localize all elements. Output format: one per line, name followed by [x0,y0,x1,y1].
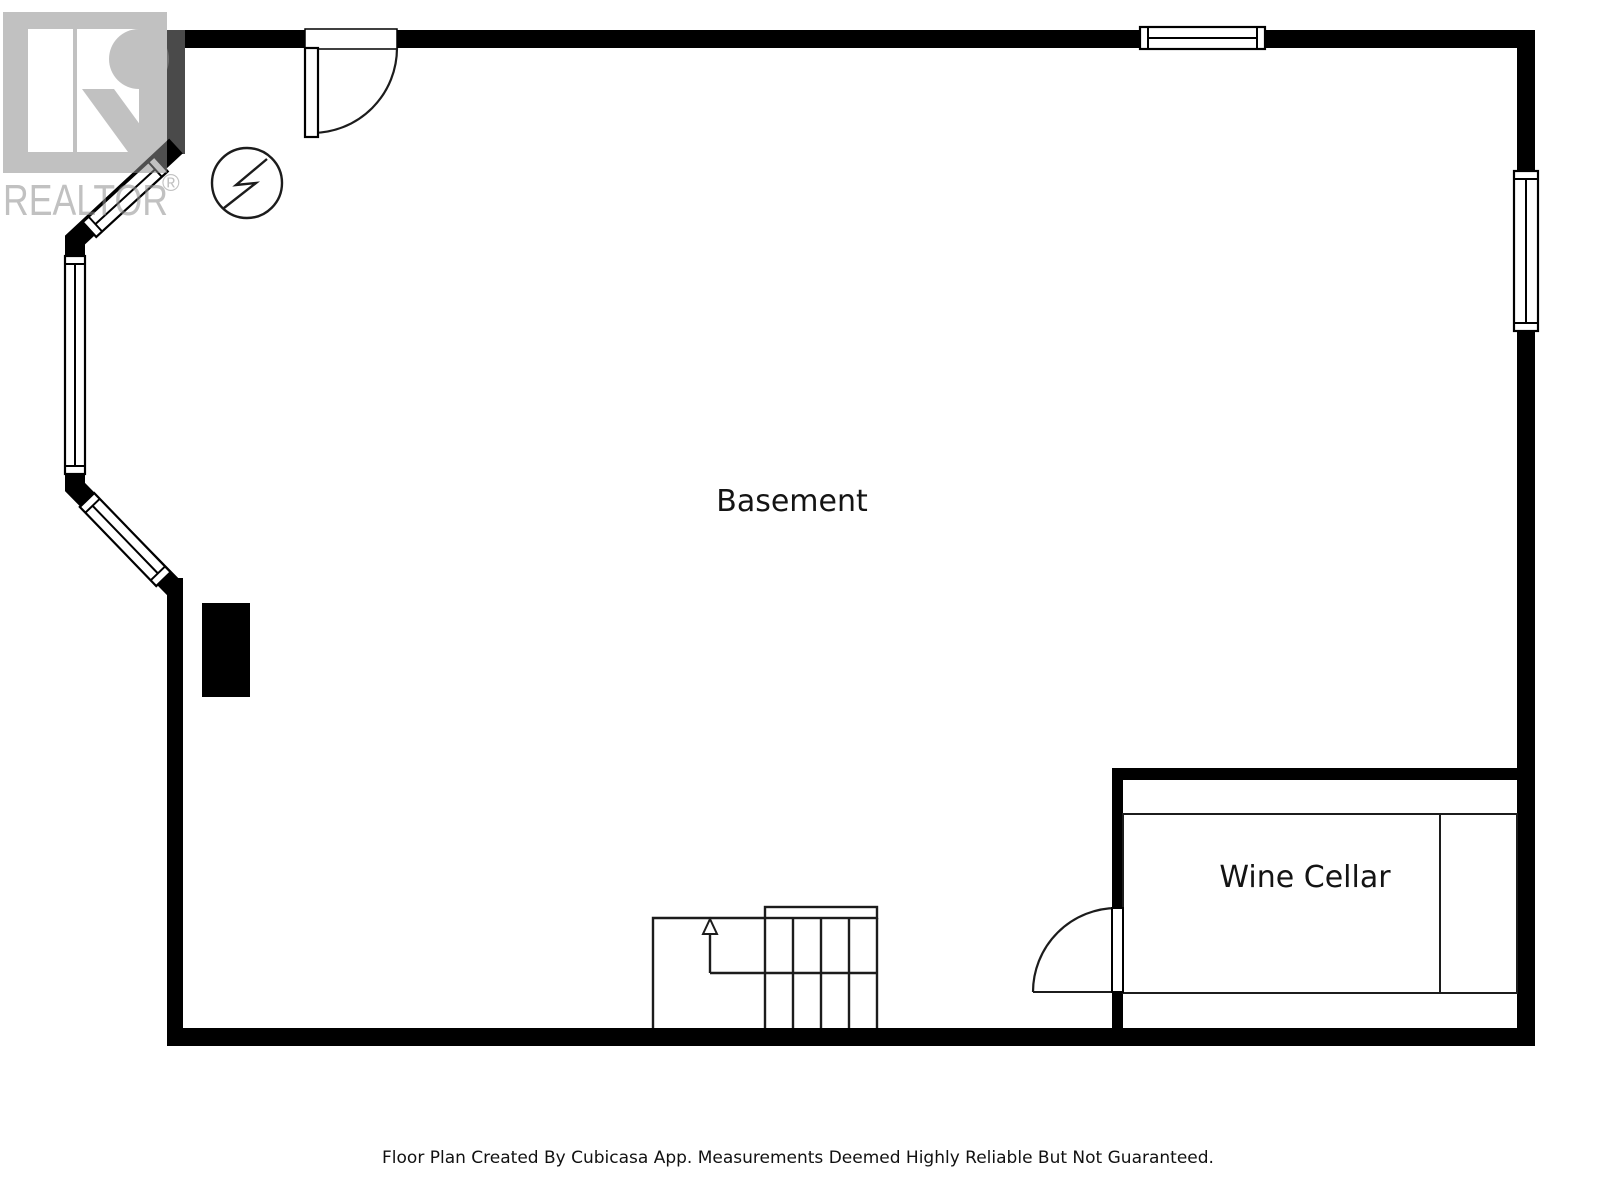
wall-top-left-segment [167,30,305,48]
wall-top-right-segment [1265,30,1535,48]
wine-cellar-label: Wine Cellar [1219,860,1391,895]
wine-cellar-door-leaf [1112,908,1123,992]
electrical-symbol-icon [212,148,282,218]
top-entry-door [305,29,397,137]
realtor-watermark: REALTOR ® [3,12,180,225]
floor-plan-page: Basement Wine Cellar REALTOR ® Floor Pla… [0,0,1600,1200]
realtor-logo-stem [28,29,73,152]
registered-trademark-symbol: ® [162,170,180,197]
wall-left-top-stub [167,30,185,154]
wall-right-lower-segment [1517,331,1535,1046]
footer-disclaimer: Floor Plan Created By Cubicasa App. Meas… [382,1148,1214,1168]
stairs [653,907,877,1028]
wall-bottom [167,1028,1535,1046]
door-threshold [305,29,397,49]
wine-cellar-wall-top [1112,768,1517,780]
stairs-up-arrow-icon [703,919,717,973]
wine-cellar-room [1033,768,1517,1028]
realtor-logo-icon [3,12,169,173]
bay-window-middle [65,256,85,474]
wall-right-upper-segment [1517,30,1535,171]
door-swing-arc [312,48,397,133]
bay-window-lower [80,493,171,586]
realtor-logo-counter [109,29,169,89]
realtor-watermark-text: REALTOR [3,176,168,225]
wine-cellar-wall-left-lower [1112,992,1123,1028]
fireplace-block [202,603,250,697]
basement-label: Basement [716,484,868,519]
wine-cellar-rack-outline [1123,814,1517,993]
wine-cellar-wall-left-upper [1112,768,1123,907]
window-top [1140,27,1265,49]
window-right [1514,171,1538,331]
stairs-top-cap [765,907,877,918]
wall-left-lower [167,578,183,1046]
wine-cellar-door-arc [1033,908,1117,992]
wall-top-middle-segment [397,30,1140,48]
door-leaf [305,48,318,137]
floor-plan-svg: Basement Wine Cellar REALTOR ® Floor Pla… [0,0,1600,1200]
